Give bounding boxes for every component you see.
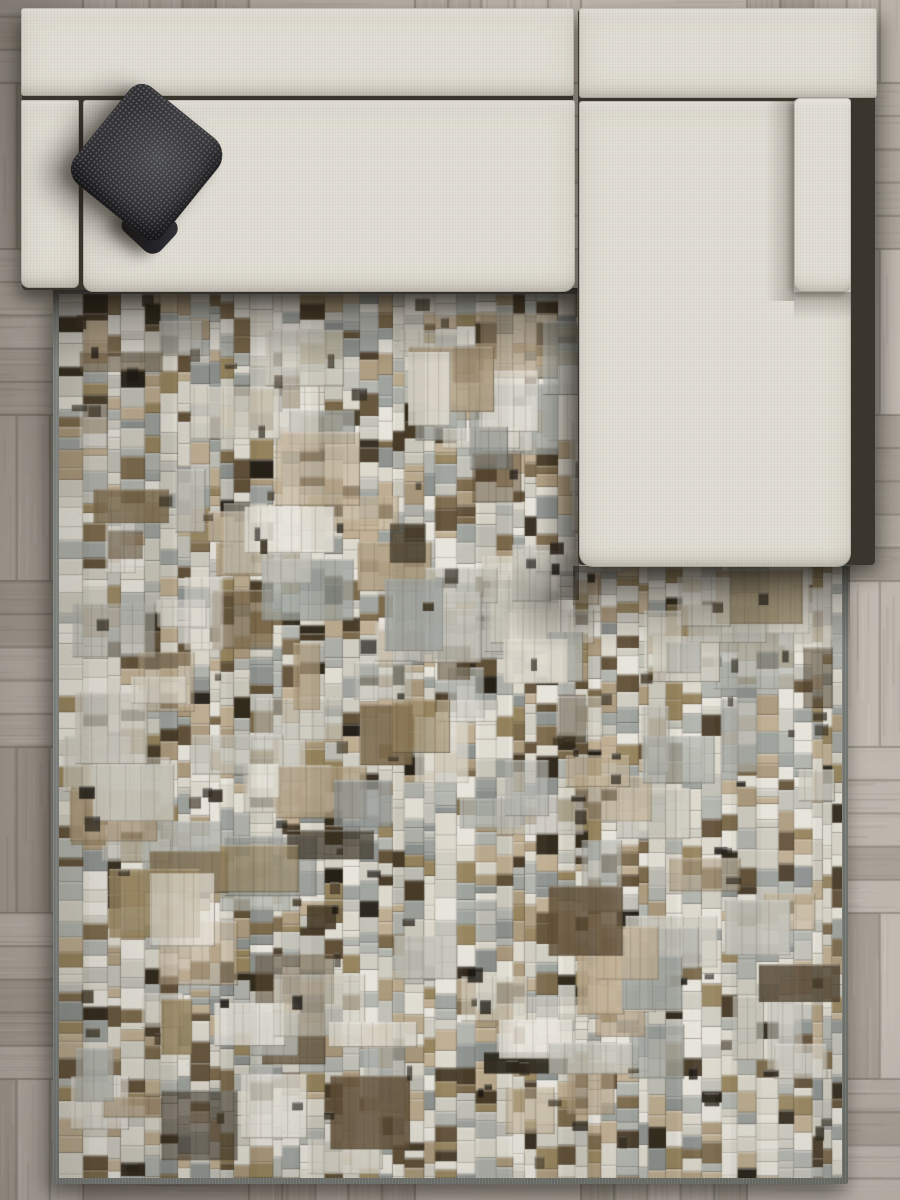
scene-root xyxy=(0,0,900,1200)
sofa-backrest-chaise xyxy=(579,8,877,98)
sofa-shadow-chaise-bottom xyxy=(573,566,850,650)
sofa-backrest-left xyxy=(21,8,574,96)
armrest-shadow-bottom xyxy=(794,292,851,320)
armrest-shadow-side xyxy=(766,101,794,301)
sofa-armrest-left xyxy=(21,100,79,288)
sofa-armrest-right xyxy=(794,98,851,292)
sofa-shadow-under-seat xyxy=(53,288,577,364)
